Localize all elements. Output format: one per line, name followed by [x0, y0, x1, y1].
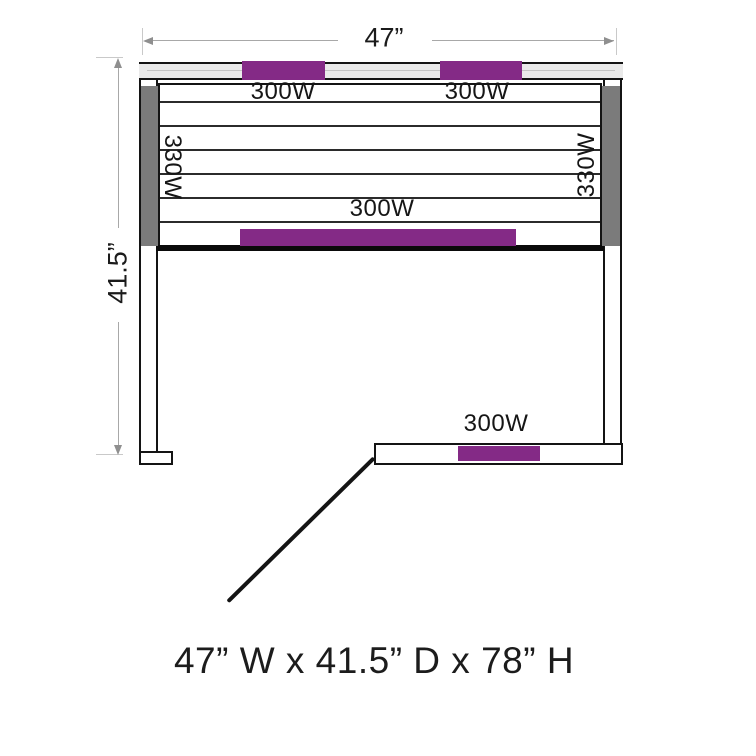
width-dimension-line — [432, 40, 614, 41]
bench-slat-line — [160, 125, 600, 127]
depth-dimension-line — [118, 62, 119, 228]
left-side-heater-label: 330W — [158, 135, 186, 200]
back-heater-right-label: 300W — [445, 78, 510, 106]
sauna-floorplan-canvas: 47” 41.5” 300W 300W 330W 330W 3 — [0, 0, 756, 756]
overall-dimensions-caption: 47” W x 41.5” D x 78” H — [174, 640, 574, 682]
width-dimension-label: 47” — [364, 23, 403, 54]
bench-front-heater — [240, 229, 516, 246]
back-heater-left-label: 300W — [251, 78, 316, 106]
dimension-arrow-up-icon — [114, 58, 122, 68]
back-wall — [139, 62, 623, 80]
depth-dimension-label: 41.5” — [103, 242, 134, 304]
dimension-arrow-right-icon — [604, 37, 614, 45]
depth-dimension-line — [118, 322, 119, 452]
dimension-arrow-left-icon — [143, 37, 153, 45]
bench — [158, 83, 602, 250]
left-side-heater-panel — [141, 86, 158, 246]
back-wall-seam-line — [147, 70, 615, 71]
bench-slat-line — [160, 173, 600, 175]
width-dimension-line — [147, 40, 338, 41]
bench-slat-line — [160, 149, 600, 151]
door-swing-line — [226, 457, 375, 604]
bench-heater-label: 300W — [350, 195, 415, 223]
front-wall-heater-label: 300W — [464, 410, 529, 438]
door-jamb-return — [139, 451, 173, 465]
bench-slat-line — [160, 101, 600, 103]
front-wall-heater — [458, 446, 540, 461]
right-side-heater-panel — [602, 86, 620, 246]
right-side-heater-label: 330W — [573, 133, 601, 198]
dimension-arrow-down-icon — [114, 445, 122, 455]
dimension-extension-line — [616, 28, 617, 55]
